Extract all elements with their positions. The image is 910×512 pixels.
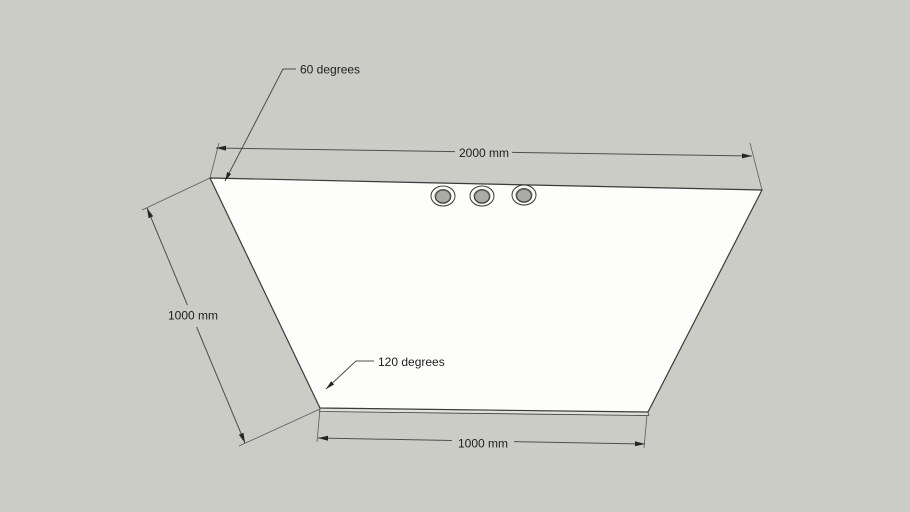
dim-label-bottom-width: 1000 mm <box>458 437 508 451</box>
mounting-hole <box>431 186 455 206</box>
mounting-hole <box>512 185 536 205</box>
label-bottom-left-angle: 120 degrees <box>378 355 445 369</box>
dim-label-top-width: 2000 mm <box>459 146 509 160</box>
mounting-hole <box>470 186 494 206</box>
dim-label-left-length: 1000 mm <box>168 309 218 323</box>
model-viewport[interactable]: 2000 mm 1000 mm 1000 mm 60 degrees 120 d… <box>0 0 910 512</box>
label-top-left-angle: 60 degrees <box>300 63 360 77</box>
